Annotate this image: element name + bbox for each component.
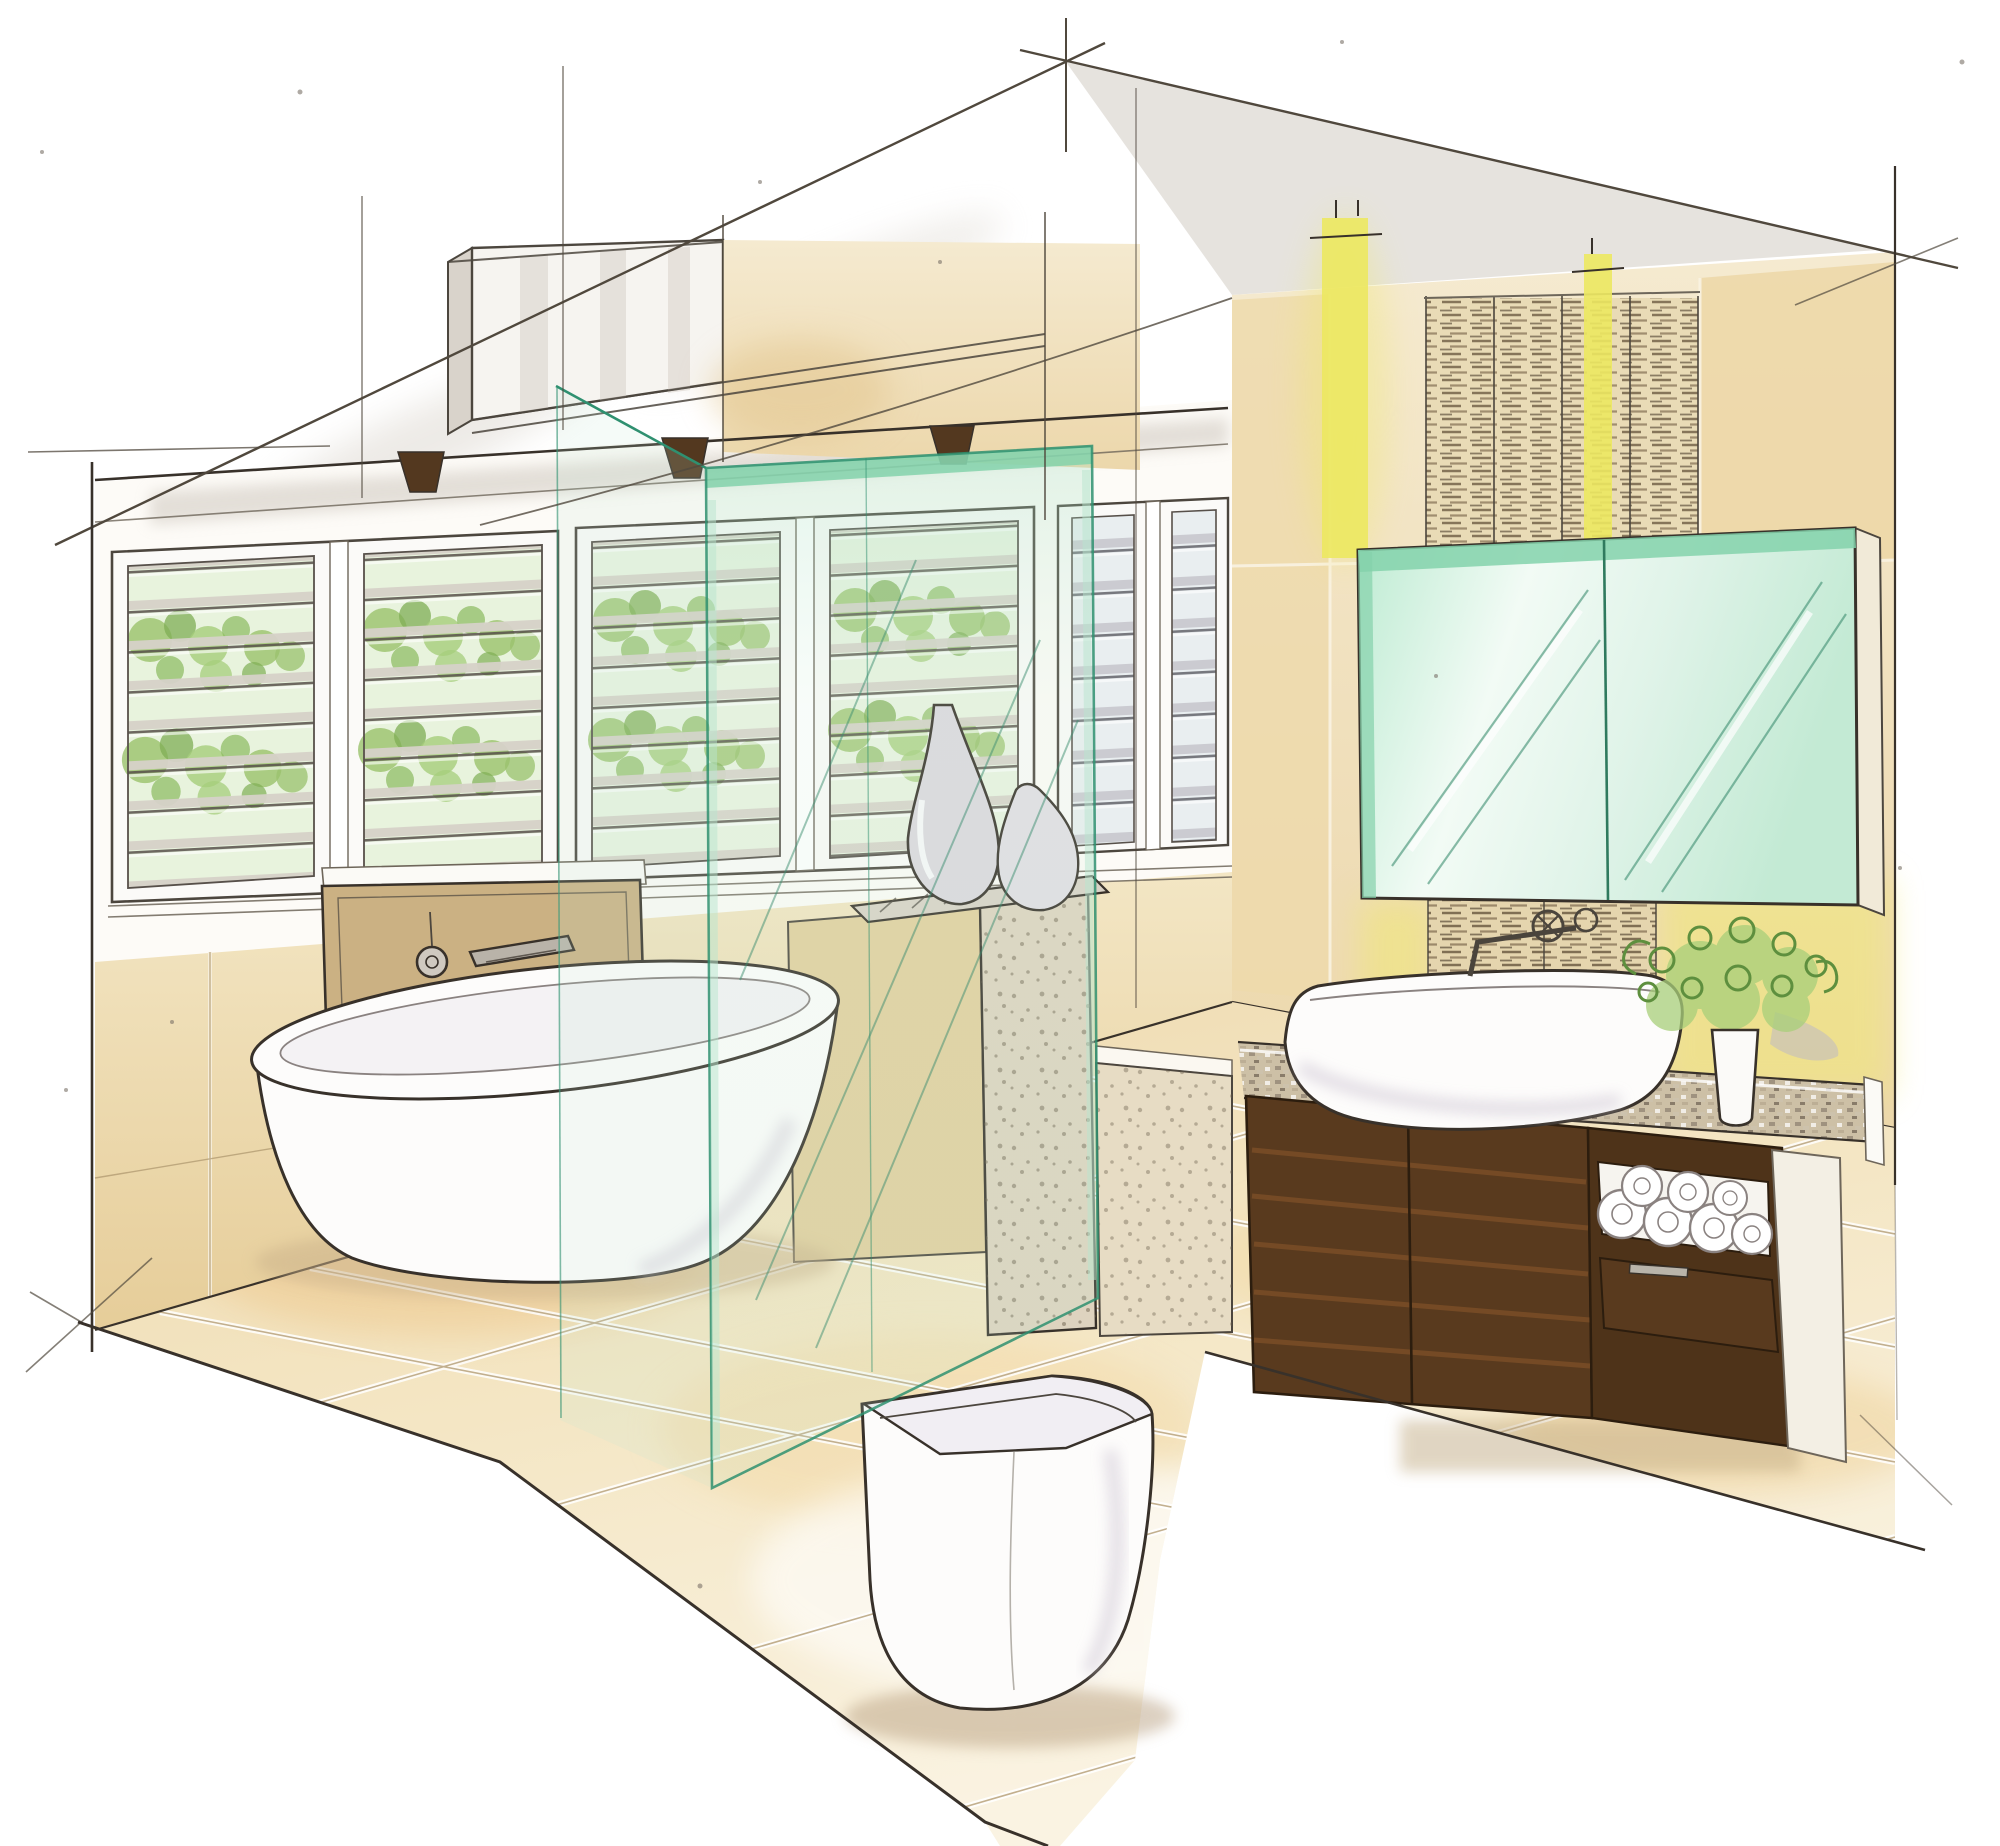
glass-return-panel: [556, 386, 712, 1488]
sketch-canvas: [0, 0, 2000, 1846]
vessel-basin: [1285, 971, 1682, 1130]
tan-panel: [1700, 262, 1895, 566]
half-wall-speckle: [1096, 1063, 1232, 1336]
tan-blotch: [710, 340, 890, 440]
clerestory-end-face: [448, 248, 472, 434]
low-half-wall: [1096, 1046, 1232, 1336]
light-batten: [1584, 254, 1612, 556]
cabinet-side: [1855, 528, 1884, 915]
edge-extension: [1895, 1185, 1897, 1420]
mirror-cabinet: [1358, 528, 1884, 915]
plant-vase: [1712, 1030, 1758, 1126]
glass-shower-screen: [556, 386, 1098, 1488]
shelf-extension: [28, 446, 330, 452]
light-batten: [1322, 218, 1368, 558]
woven-feature-panels: [1424, 292, 1700, 562]
mixer-knob: [417, 947, 447, 977]
louver-panel: [358, 545, 542, 878]
ceiling-right-sliver: [1066, 62, 1878, 295]
counter-splash-end: [1864, 1077, 1884, 1165]
louver-panel: [122, 556, 314, 888]
bathroom-sketch: [0, 0, 2000, 1846]
window-group-1: [112, 531, 558, 902]
